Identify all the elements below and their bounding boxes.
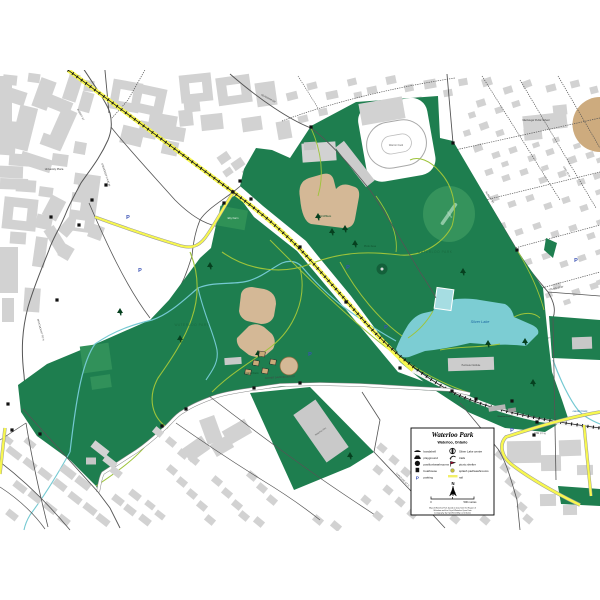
svg-text:boathouse: boathouse [424,469,438,473]
svg-text:P: P [384,325,388,331]
svg-text:rail: rail [459,476,463,480]
svg-text:trails: trails [459,456,466,460]
svg-text:Picnic Area: Picnic Area [364,245,377,248]
svg-text:Animal Farm: Animal Farm [245,372,259,375]
svg-text:Warrior Field: Warrior Field [389,144,404,147]
svg-text:playground: playground [424,456,439,460]
svg-text:Tall Willows: Tall Willows [319,215,332,218]
svg-text:pavilion/washrooms: pavilion/washrooms [424,463,450,467]
svg-text:University Plaza: University Plaza [45,167,64,171]
svg-text:WESTMOUNT RD N: WESTMOUNT RD N [36,319,45,341]
svg-text:P: P [510,428,514,434]
svg-text:P: P [126,215,130,221]
svg-text:P: P [138,268,142,274]
svg-text:MacGregor Public School: MacGregor Public School [522,119,550,122]
svg-text:Perimeter Institute: Perimeter Institute [462,364,481,367]
svg-text:YOUNG ST W: YOUNG ST W [548,285,564,291]
svg-text:Laurel Creek: Laurel Creek [573,409,589,413]
svg-text:Silver Lake: Silver Lake [471,320,490,324]
svg-text:Waterloo Park: Waterloo Park [432,431,474,439]
svg-text:P: P [574,258,578,264]
svg-text:P: P [346,265,350,271]
svg-text:500 metres: 500 metres [464,500,478,504]
svg-text:Waterloo, Ontario: Waterloo, Ontario [437,441,468,445]
svg-text:Waterloo Central: Waterloo Central [498,415,513,418]
svg-text:Silver Lake centre: Silver Lake centre [459,450,483,454]
svg-text:parking: parking [424,476,434,480]
svg-text:WATERLOO PARK: WATERLOO PARK [174,323,209,327]
svg-text:splash pad/washrooms: splash pad/washrooms [459,469,489,473]
svg-text:Eby Farm: Eby Farm [228,217,239,220]
svg-text:bandshell: bandshell [424,450,437,454]
svg-text:P: P [308,352,312,358]
svg-text:WATERLOO PARK: WATERLOO PARK [417,250,452,254]
svg-text:Cartography by OpenStreetMap c: Cartography by OpenStreetMap contributor… [434,512,471,515]
svg-text:N: N [451,481,454,486]
svg-text:ERB ST W: ERB ST W [534,432,546,436]
svg-text:picnic shelter: picnic shelter [459,463,476,467]
